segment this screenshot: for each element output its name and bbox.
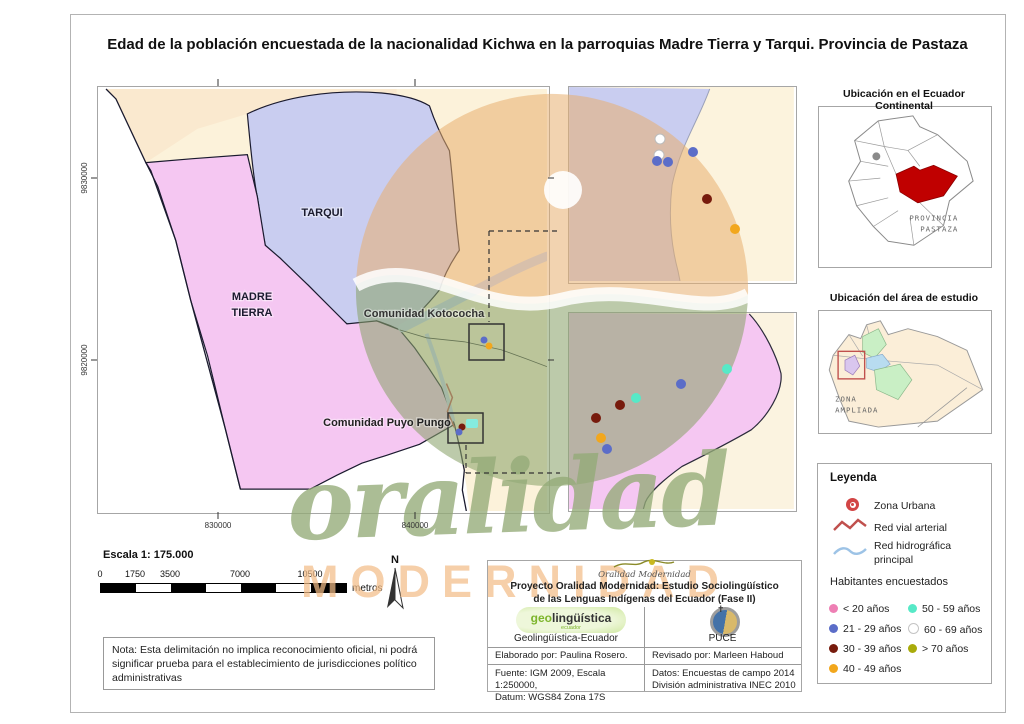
legend-subheading: Habitantes encuestados: [830, 576, 948, 588]
north-arrow-icon: [383, 566, 407, 612]
main-map-panel[interactable]: [97, 86, 550, 514]
river-icon: [832, 542, 868, 560]
ecuador-inset-panel[interactable]: PROVINCIA PASTAZA: [818, 106, 992, 268]
age-label-50-59: 50 - 59 años: [922, 603, 980, 615]
provincia-label-2: PASTAZA: [920, 224, 958, 233]
legend-urban-label: Zona Urbana: [874, 500, 935, 512]
datos-line-2: División administrativa INEC 2010: [652, 680, 800, 692]
ecuador-inset-title: Ubicación en el Ecuador Continental: [818, 88, 990, 112]
fuente-cell: Fuente: IGM 2009, Escala 1:250000, Datum…: [488, 668, 644, 704]
age-dot-lt20: [829, 604, 838, 613]
revisado-por: Revisado por: Marleen Haboud: [645, 650, 800, 661]
datos-cell: Datos: Encuestas de campo 2014 División …: [645, 668, 800, 692]
legend-road-label: Red vial arterial: [874, 522, 947, 534]
legend-panel: Leyenda Zona Urbana Red vial arterial Re…: [817, 463, 992, 684]
puyo-pungo-detail-map: [569, 313, 794, 509]
legend-river-label-1: Red hidrográfica: [874, 540, 951, 552]
scale-tick-10500: 10500: [297, 569, 322, 579]
age-dot-50-59: [908, 604, 917, 613]
age-label-40-49: 40 - 49 años: [843, 663, 901, 675]
main-map: [98, 87, 547, 511]
ecuador-map: PROVINCIA PASTAZA: [819, 107, 989, 265]
geolinguistica-logo: geolingüística ecuador: [516, 607, 626, 633]
north-arrow: N: [383, 554, 407, 612]
scale-tick-3500: 3500: [160, 569, 180, 579]
scale-tick-7000: 7000: [230, 569, 250, 579]
scale-heading: Escala 1: 175.000: [103, 549, 194, 561]
arterial-road-icon: [832, 516, 868, 534]
quito-area: [872, 152, 880, 160]
age-dot-60-69: [908, 623, 919, 634]
age-dot-40-49: [829, 664, 838, 673]
age-label-30-39: 30 - 39 años: [843, 643, 901, 655]
urban-zone-icon: [846, 498, 859, 511]
provincia-label-1: PROVINCIA: [909, 214, 958, 223]
geo-caption: Geolingüística-Ecuador: [488, 633, 644, 644]
kotococha-detail-panel[interactable]: [568, 86, 797, 284]
age-label-gt70: > 70 años: [922, 643, 968, 655]
north-label: N: [383, 554, 407, 566]
fuente-line-2: Datum: WGS84 Zona 17S: [495, 692, 644, 704]
area-inset-title: Ubicación del área de estudio: [818, 292, 990, 304]
age-label-60-69: 60 - 69 años: [924, 624, 982, 636]
legend-river-label-2: principal: [874, 554, 913, 566]
note-box: Nota: Esta delimitación no implica recon…: [103, 637, 435, 690]
map-sheet: Edad de la población encuestada de la na…: [0, 0, 1024, 724]
age-label-21-29: 21 - 29 años: [843, 623, 901, 635]
oralidad-logo-text: Oralidad Modernidad: [488, 570, 801, 580]
puce-cross-icon: ✝: [717, 604, 725, 615]
elaborado-por: Elaborado por: Paulina Rosero.: [488, 650, 644, 661]
kotococha-detail-map: [569, 87, 794, 281]
area-map: ZONA AMPLIADA: [819, 311, 989, 431]
age-dot-gt70: [908, 644, 917, 653]
credits-box: Oralidad Modernidad Proyecto Oralidad Mo…: [487, 560, 802, 692]
zona-label-2: AMPLIADA: [835, 405, 878, 414]
scale-tick-1750: 1750: [125, 569, 145, 579]
geo-logo-rest: lingüística: [552, 611, 611, 625]
scale-bar: [100, 583, 347, 593]
legend-heading: Leyenda: [830, 472, 877, 484]
puyo-pungo-detail-panel[interactable]: [568, 312, 797, 512]
project-line-1: Proyecto Oralidad Modernidad: Estudio So…: [488, 581, 801, 592]
area-inset-panel[interactable]: ZONA AMPLIADA: [818, 310, 992, 434]
project-line-2: de las Lenguas Indígenas del Ecuador (Fa…: [488, 594, 801, 605]
age-label-lt20: < 20 años: [843, 603, 889, 615]
datos-line-1: Datos: Encuestas de campo 2014: [652, 668, 800, 680]
oralidad-logo-icon: [612, 558, 676, 570]
scale-tick-0: 0: [97, 569, 102, 579]
puce-caption: PUCE: [645, 633, 800, 644]
map-title: Edad de la población encuestada de la na…: [80, 36, 995, 53]
fuente-line-1: Fuente: IGM 2009, Escala 1:250000,: [495, 668, 644, 692]
zona-label-1: ZONA: [835, 394, 857, 403]
age-dot-21-29: [829, 624, 838, 633]
age-dot-30-39: [829, 644, 838, 653]
geo-logo-geo: geo: [531, 611, 552, 625]
scale-unit: metros: [352, 583, 383, 594]
geo-logo-sub: ecuador: [516, 625, 626, 631]
